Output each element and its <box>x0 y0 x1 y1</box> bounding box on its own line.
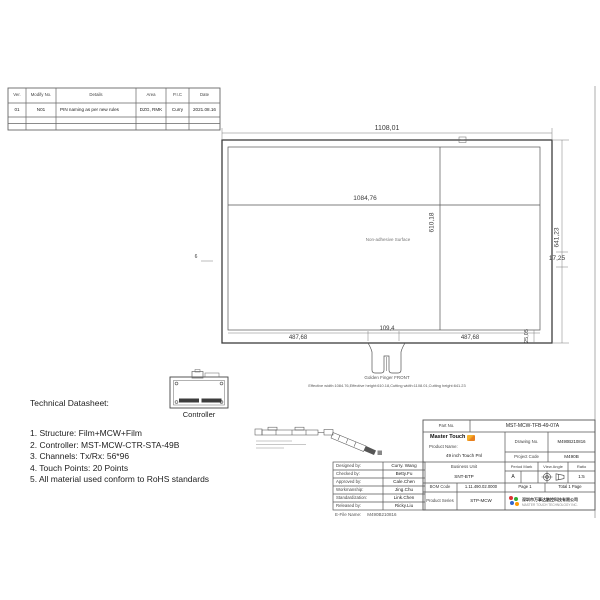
revision-header-area: Area <box>136 88 166 103</box>
bom-code-label: BOM Code <box>423 483 457 492</box>
total-page-value: Total 1 Page <box>545 483 595 492</box>
datasheet-item-2: 2. Controller: MST-MCW-CTR-STA-49B <box>30 441 179 450</box>
datasheet-item-5: 5. All material used conform to RoHS sta… <box>30 475 209 484</box>
period-mark-value: A <box>505 471 521 483</box>
datasheet-item-3: 3. Channels: Tx/Rx: 56*96 <box>30 452 129 461</box>
company-logo-icon <box>508 495 520 507</box>
dim-effective-height: 610,18 <box>429 203 438 243</box>
revision-cell-date: 2021.08.16 <box>189 103 220 117</box>
dim-cutting-height: 641,23 <box>554 218 563 258</box>
efile-label: E-File Name: <box>335 513 361 518</box>
bom-code-value: 1.11.490.02.0000 <box>457 483 505 492</box>
master-touch-logo-icon <box>467 435 475 441</box>
role-designed-by: Designed by: <box>336 462 383 470</box>
page-value: Page 1 <box>505 483 545 492</box>
part-no-value: MST-MCW-TFB-49-07A <box>470 420 595 432</box>
business-unit-label: Business Unit <box>423 463 505 471</box>
revision-header-pic: P.I.C <box>166 88 189 103</box>
efile-value: M490B210816 <box>367 513 396 518</box>
dim-bottom-border: 25,05 <box>524 323 532 349</box>
brand-row: Master Touch <box>430 434 475 442</box>
revision-cell-area: DZG, RMK <box>136 103 166 117</box>
ratio-value: 1:5 <box>568 471 595 483</box>
project-code-label: Project Code <box>505 452 548 462</box>
revision-cell-modify: N01 <box>26 103 56 117</box>
part-no-label: Part No. <box>423 420 470 432</box>
name-workmanship: Jing.Chu <box>383 486 425 494</box>
datasheet-item-1: 1. Structure: Film+MCW+Film <box>30 429 142 438</box>
role-checked-by: Checked by: <box>336 470 383 478</box>
company-name-en: MASTER TOUCH TECHNOLOGY INC. <box>522 504 594 509</box>
golden-finger-label: Golden Finger FRONT <box>337 376 437 382</box>
surface-label: Non-adhesive Surface <box>348 237 428 244</box>
brand-name: Master Touch <box>430 435 465 441</box>
dim-effective-width: 1084,76 <box>335 195 395 204</box>
view-angle-label: View Angle <box>538 462 568 471</box>
revision-header-date: Date <box>189 88 220 103</box>
view-angle-projection-icon <box>542 472 565 483</box>
ratio-label: Ratio <box>568 462 595 471</box>
cable-drawing <box>255 427 382 455</box>
company-name-cn: 深圳市万事达触控科技有限公司 <box>522 497 594 503</box>
dim-cutting-width: 1108,01 <box>357 124 417 133</box>
role-standardization: Standardization: <box>336 494 383 502</box>
role-workmanship: Workmanship: <box>336 486 383 494</box>
revision-header-modify: Modify No. <box>26 88 56 103</box>
drawing-no-label: Drawing No. <box>505 432 548 452</box>
dim-bottom-left-width: 487,68 <box>278 334 318 342</box>
datasheet-title: Technical Datasheet: <box>30 399 109 408</box>
name-checked-by: Betty.Fu <box>383 470 425 478</box>
cutting-note: Effective width:1084.76,Effective height… <box>257 383 517 389</box>
dim-tail-width: 109,4 <box>367 325 407 333</box>
business-unit-value: SNT-BTP <box>423 473 505 482</box>
dim-bottom-right-width: 487,68 <box>450 334 490 342</box>
product-name-value: 49 inch Touch Pnl <box>423 452 505 460</box>
project-code-value: M490B <box>548 452 595 462</box>
revision-header-details: Details <box>56 88 136 103</box>
datasheet-item-4: 4. Touch Points: 20 Points <box>30 464 128 473</box>
name-designed-by: Curry. Wang <box>383 462 425 470</box>
name-standardization: Link.Chen <box>383 494 425 502</box>
name-released-by: Ricky.Liu <box>383 502 425 510</box>
controller-label: Controller <box>175 410 223 420</box>
controller-drawing <box>170 370 228 409</box>
drawing-no-value: M490B210816 <box>548 432 595 452</box>
revision-header-ver: Ver. <box>8 88 26 103</box>
product-name-label: Product Name: <box>429 445 499 451</box>
role-approved-by: Approved by: <box>336 478 383 486</box>
period-mark-label: Period Mark <box>505 462 538 471</box>
revision-cell-pic: Curry <box>166 103 189 117</box>
dim-left-border: 6 <box>191 253 201 261</box>
revision-cell-ver: 01 <box>8 103 26 117</box>
role-released-by: Released by: <box>336 502 383 510</box>
efile-row: E-File Name: M490B210816 <box>335 512 397 518</box>
name-approved-by: Cale.Chen <box>383 478 425 486</box>
revision-cell-details: PIN naming as per new rules <box>60 103 136 117</box>
product-series-label: Product Series <box>423 492 457 510</box>
dimension-lines <box>201 128 569 343</box>
dim-right-border: 17,25 <box>540 255 574 264</box>
golden-finger-tail <box>368 343 405 373</box>
product-series-value: STP-MCW <box>457 492 505 510</box>
